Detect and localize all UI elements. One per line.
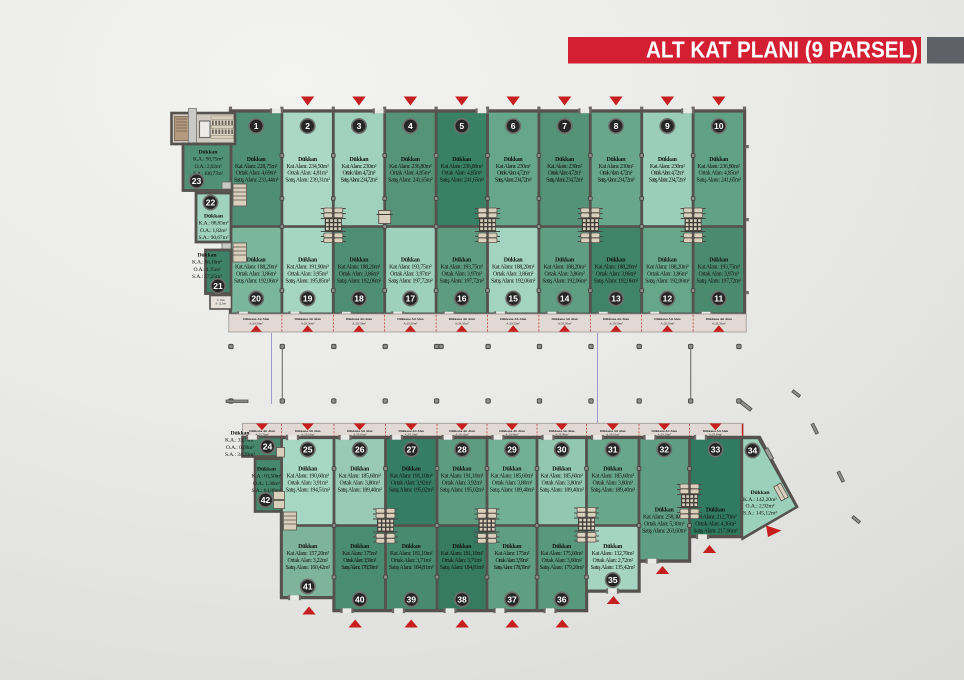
svg-text:Satış Alanı: 135,42m²: Satış Alanı: 135,42m² — [591, 565, 636, 571]
svg-text:12: 12 — [663, 294, 673, 304]
svg-text:Ortak Alan: 3,59m²: Ortak Alan: 3,59m² — [343, 558, 376, 564]
svg-text:25: 25 — [303, 445, 313, 455]
svg-text:Dükkan: Dükkan — [503, 467, 523, 473]
svg-text:Dükkan: Dükkan — [452, 258, 472, 264]
svg-text:Ortak Alan: 3,86m²: Ortak Alan: 3,86m² — [339, 272, 380, 278]
svg-text:Dükkan: Dükkan — [204, 214, 224, 220]
svg-text:Satış Alanı: 241,65m²: Satış Alanı: 241,65m² — [440, 177, 485, 183]
svg-text:Ortak Alan: 3,60m²: Ortak Alan: 3,60m² — [542, 558, 583, 564]
svg-text:Satış Alanı: 197,72m²: Satış Alanı: 197,72m² — [440, 279, 485, 285]
svg-text:Satış Alanı: 239,31m²: Satış Alanı: 239,31m² — [285, 177, 330, 183]
svg-text:Ortak Alan: 3,86m²: Ortak Alan: 3,86m² — [493, 272, 534, 278]
svg-text:Satış Alanı: 192,06m²: Satış Alanı: 192,06m² — [645, 279, 690, 285]
svg-text:Ortak Alan: 3,92m²: Ortak Alan: 3,92m² — [442, 481, 483, 487]
svg-text:8: 8 — [614, 121, 619, 131]
svg-text:Ortak Alan: 3,86m²: Ortak Alan: 3,86m² — [647, 272, 688, 278]
svg-text:Satış Alanı: 194,51m²: Satış Alanı: 194,51m² — [286, 488, 331, 494]
svg-text:Dükkan: Dükkan — [452, 157, 472, 163]
svg-text:Satış Alanı: 234,72m²: Satış Alanı: 234,72m² — [649, 177, 686, 183]
svg-text:Ortak Alan: 3,86m²: Ortak Alan: 3,86m² — [236, 272, 277, 278]
svg-text:Dükkan: Dükkan — [247, 258, 267, 264]
svg-text:21: 21 — [213, 281, 223, 291]
svg-text:Satış Alanı: 197,72m²: Satış Alanı: 197,72m² — [388, 279, 433, 285]
svg-text:Ortak Alan: 3,80m²: Ortak Alan: 3,80m² — [542, 481, 583, 487]
svg-text:32: 32 — [659, 445, 669, 455]
svg-text:Ortak Alan: 4,36m²: Ortak Alan: 4,36m² — [695, 522, 736, 528]
svg-text:Ortak Alan: 3,86m²: Ortak Alan: 3,86m² — [596, 272, 637, 278]
svg-text:Ortak Alan: 3,97m²: Ortak Alan: 3,97m² — [699, 272, 740, 278]
svg-text:Kat Alanı: 190,60m²: Kat Alanı: 190,60m² — [287, 474, 330, 480]
svg-text:Kat Alanı: 230m²: Kat Alanı: 230m² — [496, 164, 531, 170]
svg-text:Satış Alanı: 234,72m²: Satış Alanı: 234,72m² — [495, 177, 532, 183]
svg-text:34: 34 — [748, 446, 758, 456]
svg-text:Satış Alanı: 217,06m²: Satış Alanı: 217,06m² — [693, 529, 738, 535]
svg-text:Ortak Alan: 4,72m²: Ortak Alan: 4,72m² — [651, 171, 684, 177]
svg-text:Ortak Alan: 4,85m²: Ortak Alan: 4,85m² — [442, 171, 483, 177]
svg-text:Dükkan: Dükkan — [658, 157, 678, 163]
svg-text:Ortak Alan: 3,71m²: Ortak Alan: 3,71m² — [391, 558, 432, 564]
svg-text:Satış Alanı: 263,60m²: Satış Alanı: 263,60m² — [642, 529, 687, 535]
svg-text:Kat Alanı: 230m²: Kat Alanı: 230m² — [650, 164, 685, 170]
svg-text:Ortak Alan: 3,95m²: Ortak Alan: 3,95m² — [287, 272, 328, 278]
svg-text:39: 39 — [406, 595, 416, 605]
svg-text:Satış Alanı: 189,40m²: Satış Alanı: 189,40m² — [591, 488, 636, 494]
svg-text:Satış Alanı: 192,06m²: Satış Alanı: 192,06m² — [594, 279, 639, 285]
svg-text:Satış Alanı: 184,81m²: Satış Alanı: 184,81m² — [440, 565, 485, 571]
svg-text:ALT KAT PLANI (9 PARSEL): ALT KAT PLANI (9 PARSEL) — [646, 37, 918, 63]
svg-text:O.A.: 1,82m²: O.A.: 1,82m² — [200, 228, 227, 234]
svg-text:Dükkan: Dükkan — [607, 157, 627, 163]
svg-text:Kat Alanı: 185,60m²: Kat Alanı: 185,60m² — [339, 474, 382, 480]
svg-text:Kat Alanı: 191,10m²: Kat Alanı: 191,10m² — [390, 474, 433, 480]
svg-text:Satış Alanı: 195,02m²: Satış Alanı: 195,02m² — [440, 488, 485, 494]
svg-text:Ortak Alan: 4,85m²: Ortak Alan: 4,85m² — [699, 171, 740, 177]
svg-text:Kat Alanı: 181,10m²: Kat Alanı: 181,10m² — [441, 551, 484, 557]
svg-text:Kat Alanı: 175m²: Kat Alanı: 175m² — [495, 551, 530, 557]
svg-text:Dükkan: Dükkan — [503, 544, 523, 550]
svg-text:Dükkan: Dükkan — [401, 258, 421, 264]
svg-text:Kat Alanı: 230m²: Kat Alanı: 230m² — [599, 164, 634, 170]
svg-text:17: 17 — [406, 294, 416, 304]
svg-text:Dükkan: Dükkan — [603, 544, 623, 550]
svg-text:31: 31 — [608, 445, 618, 455]
svg-text:Dükkan: Dükkan — [552, 467, 572, 473]
svg-text:Dükkan: Dükkan — [401, 157, 421, 163]
svg-text:Kat Alanı: 188,20m²: Kat Alanı: 188,20m² — [338, 265, 381, 271]
svg-text:36: 36 — [557, 595, 567, 605]
svg-text:Satış Alanı: 197,72m²: Satış Alanı: 197,72m² — [697, 279, 742, 285]
svg-text:19: 19 — [303, 294, 313, 304]
svg-text:Satış Alanı: 195,85m²: Satış Alanı: 195,85m² — [285, 279, 330, 285]
svg-text:Kat Alanı: 175m²: Kat Alanı: 175m² — [342, 551, 377, 557]
svg-text:28: 28 — [457, 445, 467, 455]
svg-text:K.A.: 63,50m²: K.A.: 63,50m² — [252, 474, 282, 480]
svg-text:O.A.: 1,15m²: O.A.: 1,15m² — [194, 267, 221, 273]
svg-text:Satış Alanı: 189,40m²: Satış Alanı: 189,40m² — [490, 488, 535, 494]
svg-text:35: 35 — [608, 575, 618, 585]
svg-text:Dükkan: Dükkan — [199, 150, 219, 156]
svg-text:Kat Alanı: 191,10m²: Kat Alanı: 191,10m² — [441, 474, 484, 480]
svg-text:Ortak Alan: 4,72m²: Ortak Alan: 4,72m² — [343, 171, 376, 177]
svg-text:Dükkan: Dükkan — [751, 490, 771, 496]
svg-text:Kat Alanı: 188,20m²: Kat Alanı: 188,20m² — [646, 265, 689, 271]
svg-text:Satış Alanı: 234,72m²: Satış Alanı: 234,72m² — [546, 177, 583, 183]
svg-text:Ortak Alan: 4,69m²: Ortak Alan: 4,69m² — [236, 171, 277, 177]
svg-text:24: 24 — [263, 442, 273, 452]
svg-text:Satış Alanı: 241,65m²: Satış Alanı: 241,65m² — [697, 177, 742, 183]
svg-text:Kat Alanı: 185,60m²: Kat Alanı: 185,60m² — [592, 474, 635, 480]
svg-text:Kat Alanı: 193,75m²: Kat Alanı: 193,75m² — [441, 265, 484, 271]
svg-text:Satış Alanı: 195,02m²: Satış Alanı: 195,02m² — [389, 488, 434, 494]
svg-text:Ortak Alan: 4,72m²: Ortak Alan: 4,72m² — [548, 171, 581, 177]
svg-text:O.A.: 2,02m²: O.A.: 2,02m² — [195, 164, 222, 170]
svg-text:16: 16 — [457, 294, 467, 304]
svg-text:Satış Alanı: 178,59m²: Satış Alanı: 178,59m² — [494, 565, 531, 571]
svg-text:Dükkan: Dükkan — [453, 467, 473, 473]
svg-text:Kat Alanı: 236,80m²: Kat Alanı: 236,80m² — [389, 164, 432, 170]
svg-text:Dükkan: Dükkan — [402, 544, 422, 550]
svg-text:14: 14 — [560, 294, 570, 304]
svg-text:Kat Alanı: 193,75m²: Kat Alanı: 193,75m² — [698, 265, 741, 271]
svg-text:Ortak Alan: 3,22m²: Ortak Alan: 3,22m² — [288, 558, 329, 564]
svg-text:13: 13 — [611, 294, 621, 304]
svg-text:Kat Alanı: 234,50m²: Kat Alanı: 234,50m² — [286, 164, 329, 170]
svg-text:Satış Alanı: 160,42m²: Satış Alanı: 160,42m² — [286, 565, 331, 571]
svg-text:Satış Alanı: 233,44m²: Satış Alanı: 233,44m² — [234, 177, 279, 183]
svg-text:Ortak Alan: 4,85m²: Ortak Alan: 4,85m² — [390, 171, 431, 177]
svg-text:Dükkan: Dükkan — [655, 508, 675, 514]
svg-text:Ortak Alan: 3,86m²: Ortak Alan: 3,86m² — [544, 272, 585, 278]
svg-text:Kat Alanı: 188,20m²: Kat Alanı: 188,20m² — [492, 265, 535, 271]
svg-text:37: 37 — [507, 595, 517, 605]
svg-text:40: 40 — [355, 595, 365, 605]
svg-text:27: 27 — [406, 445, 416, 455]
svg-text:Satış Alanı: 234,72m²: Satış Alanı: 234,72m² — [598, 177, 635, 183]
svg-text:Ortak Alan: 3,80m²: Ortak Alan: 3,80m² — [593, 481, 634, 487]
svg-text:Kat Alanı: 191,90m²: Kat Alanı: 191,90m² — [286, 265, 329, 271]
svg-text:Dükkan: Dükkan — [350, 544, 370, 550]
svg-text:Ortak Alan: 4,72m²: Ortak Alan: 4,72m² — [497, 171, 530, 177]
svg-text:2: 2 — [305, 121, 310, 131]
svg-text:O.A.: 1,30m²: O.A.: 1,30m² — [253, 481, 280, 487]
svg-text:Dükkan: Dükkan — [350, 157, 370, 163]
svg-text:S.A.: 145,12m²: S.A.: 145,12m² — [743, 510, 777, 516]
svg-text:A: 12,5m²: A: 12,5m² — [215, 303, 226, 306]
svg-text:Kat Alanı: 185,60m²: Kat Alanı: 185,60m² — [541, 474, 584, 480]
svg-text:Kat Alanı: 175,60m²: Kat Alanı: 175,60m² — [541, 551, 584, 557]
svg-text:10: 10 — [714, 121, 724, 131]
svg-text:K.A.: 56,10m²: K.A.: 56,10m² — [192, 260, 222, 266]
svg-text:Kat Alanı: 236,80m²: Kat Alanı: 236,80m² — [698, 164, 741, 170]
svg-text:22: 22 — [206, 198, 216, 208]
svg-text:Dükkan: Dükkan — [552, 544, 572, 550]
svg-text:7: 7 — [562, 121, 567, 131]
svg-text:Kat Alanı: 188,20m²: Kat Alanı: 188,20m² — [595, 265, 638, 271]
svg-text:Dükkan: Dükkan — [607, 258, 627, 264]
svg-text:K.A.: 98,75m²: K.A.: 98,75m² — [193, 157, 223, 163]
svg-text:S.A.: 90,67m²: S.A.: 90,67m² — [199, 235, 229, 241]
svg-text:30: 30 — [557, 445, 567, 455]
svg-text:Dükkan: Dükkan — [298, 258, 318, 264]
svg-text:Satış Alanı: 241,65m²: Satış Alanı: 241,65m² — [388, 177, 433, 183]
svg-text:41: 41 — [303, 582, 313, 592]
svg-text:K.A.: 88,85m²: K.A.: 88,85m² — [199, 221, 229, 227]
svg-text:Ortak Alan: 4,81m²: Ortak Alan: 4,81m² — [287, 171, 328, 177]
svg-text:38: 38 — [457, 595, 467, 605]
svg-text:Dükkan: Dükkan — [298, 544, 318, 550]
svg-text:S. Oda: S. Oda — [217, 298, 226, 302]
svg-text:K.A.: 142,20m²: K.A.: 142,20m² — [743, 497, 777, 503]
svg-text:Satış Alanı: 192,06m²: Satış Alanı: 192,06m² — [542, 279, 587, 285]
svg-text:6: 6 — [511, 121, 516, 131]
svg-text:Satış Alanı: 189,40m²: Satış Alanı: 189,40m² — [540, 488, 585, 494]
svg-text:Satış Alanı: 179,20m²: Satış Alanı: 179,20m² — [540, 565, 585, 571]
svg-text:1: 1 — [254, 121, 259, 131]
svg-text:4: 4 — [408, 121, 413, 131]
svg-text:23: 23 — [192, 176, 202, 186]
svg-text:Kat Alanı: 188,20m²: Kat Alanı: 188,20m² — [543, 265, 586, 271]
svg-text:Dükkan: Dükkan — [247, 157, 267, 163]
svg-text:9: 9 — [665, 121, 670, 131]
svg-text:Dükkan: Dükkan — [709, 157, 729, 163]
svg-text:Kat Alanı: 157,20m²: Kat Alanı: 157,20m² — [287, 551, 330, 557]
svg-text:Satış Alanı: 184,81m²: Satış Alanı: 184,81m² — [389, 565, 434, 571]
svg-text:Ortak Alan: 3,71m²: Ortak Alan: 3,71m² — [442, 558, 483, 564]
svg-text:Kat Alanı: 230m²: Kat Alanı: 230m² — [547, 164, 582, 170]
svg-text:Kat Alanı: 193,75m²: Kat Alanı: 193,75m² — [389, 265, 432, 271]
svg-text:Ortak Alan: 3,59m²: Ortak Alan: 3,59m² — [496, 558, 529, 564]
svg-text:15: 15 — [508, 294, 518, 304]
svg-text:Ortak Alan: 3,91m²: Ortak Alan: 3,91m² — [288, 481, 329, 487]
svg-text:Kat Alanı: 236,80m²: Kat Alanı: 236,80m² — [441, 164, 484, 170]
svg-text:26: 26 — [355, 445, 365, 455]
svg-text:Ortak Alan: 5,30m²: Ortak Alan: 5,30m² — [644, 522, 685, 528]
svg-text:Dükkan: Dükkan — [555, 258, 575, 264]
svg-text:Dükkan: Dükkan — [350, 258, 370, 264]
svg-text:Dükkan: Dükkan — [298, 467, 318, 473]
svg-text:O.A.: 0,69m²: O.A.: 0,69m² — [226, 445, 254, 451]
svg-text:Dükkan: Dükkan — [257, 467, 277, 473]
svg-text:Dükkan: Dükkan — [555, 157, 575, 163]
svg-text:Dükkan: Dükkan — [402, 467, 422, 473]
svg-text:Dükkan: Dükkan — [603, 467, 623, 473]
svg-text:O.A.: 2,92m²: O.A.: 2,92m² — [746, 504, 775, 510]
svg-text:Dükkan: Dükkan — [658, 258, 678, 264]
svg-text:Dükkan: Dükkan — [350, 467, 370, 473]
svg-text:S.A.: 34,39m²: S.A.: 34,39m² — [225, 452, 255, 458]
svg-text:Ortak Alan: 3,97m²: Ortak Alan: 3,97m² — [442, 272, 483, 278]
svg-text:Satış Alanı: 189,40m²: Satış Alanı: 189,40m² — [338, 488, 383, 494]
svg-text:Dükkan: Dükkan — [709, 258, 729, 264]
svg-text:Kat Alanı: 132,70m²: Kat Alanı: 132,70m² — [592, 551, 635, 557]
svg-text:29: 29 — [507, 445, 517, 455]
svg-text:Ortak Alan: 3,80m²: Ortak Alan: 3,80m² — [340, 481, 381, 487]
svg-text:Dükkan: Dükkan — [298, 157, 318, 163]
svg-text:Ortak Alan: 3,80m²: Ortak Alan: 3,80m² — [492, 481, 533, 487]
svg-text:20: 20 — [251, 294, 261, 304]
svg-text:11: 11 — [714, 294, 723, 304]
svg-text:Dükkan: Dükkan — [198, 253, 218, 259]
svg-text:Satış Alanı: 178,59m²: Satış Alanı: 178,59m² — [341, 565, 378, 571]
svg-text:Ortak Alan: 2,72m²: Ortak Alan: 2,72m² — [593, 558, 634, 564]
svg-text:33: 33 — [711, 445, 721, 455]
svg-text:Kat Alanı: 188,20m²: Kat Alanı: 188,20m² — [235, 265, 278, 271]
svg-text:5: 5 — [459, 121, 464, 131]
svg-text:18: 18 — [354, 294, 364, 304]
svg-text:Kat Alanı: 228,75m²: Kat Alanı: 228,75m² — [235, 164, 278, 170]
svg-text:Dükkan: Dükkan — [453, 544, 473, 550]
svg-text:Satış Alanı: 192,06m²: Satış Alanı: 192,06m² — [491, 279, 536, 285]
svg-text:Kat Alanı: 230m²: Kat Alanı: 230m² — [342, 164, 377, 170]
svg-text:Ortak Alan: 3,92m²: Ortak Alan: 3,92m² — [391, 481, 432, 487]
svg-text:Kat Alanı: 185,60m²: Kat Alanı: 185,60m² — [491, 474, 534, 480]
svg-text:Dükkan: Dükkan — [504, 157, 524, 163]
svg-text:Ortak Alan: 4,72m²: Ortak Alan: 4,72m² — [600, 171, 633, 177]
svg-text:Satış Alanı: 192,06m²: Satış Alanı: 192,06m² — [337, 279, 382, 285]
svg-text:Ortak Alan: 3,97m²: Ortak Alan: 3,97m² — [390, 272, 431, 278]
svg-text:42: 42 — [261, 495, 271, 505]
svg-text:3: 3 — [357, 121, 362, 131]
svg-text:Satış Alanı: 192,06m²: Satış Alanı: 192,06m² — [234, 279, 279, 285]
svg-text:Dükkan: Dükkan — [706, 508, 726, 514]
svg-text:Kat Alanı: 181,10m²: Kat Alanı: 181,10m² — [390, 551, 433, 557]
svg-text:Satış Alanı: 234,72m²: Satış Alanı: 234,72m² — [341, 177, 378, 183]
svg-text:Dükkan: Dükkan — [504, 258, 524, 264]
